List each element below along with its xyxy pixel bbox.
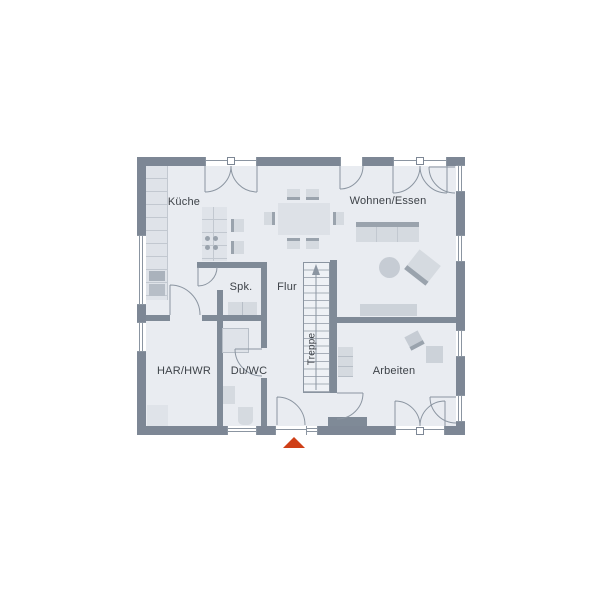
floorplan-page: { "plan": { "type": "floor-plan", "floor… — [0, 0, 600, 600]
room-label-spk: Spk. — [230, 281, 253, 293]
room-label-wohnen-essen: Wohnen/Essen — [350, 195, 427, 207]
stair-direction-arrow-icon — [312, 264, 320, 275]
room-label-arbeiten: Arbeiten — [373, 365, 416, 377]
room-label-kueche: Küche — [168, 196, 200, 208]
room-label-har-hwr: HAR/HWR — [157, 365, 211, 377]
room-label-du-wc: Du/WC — [231, 365, 267, 377]
room-label-flur: Flur — [277, 281, 297, 293]
entrance-marker-icon — [283, 437, 305, 448]
door-swing-overlay — [0, 0, 600, 600]
room-label-treppe: Treppe — [307, 333, 318, 366]
